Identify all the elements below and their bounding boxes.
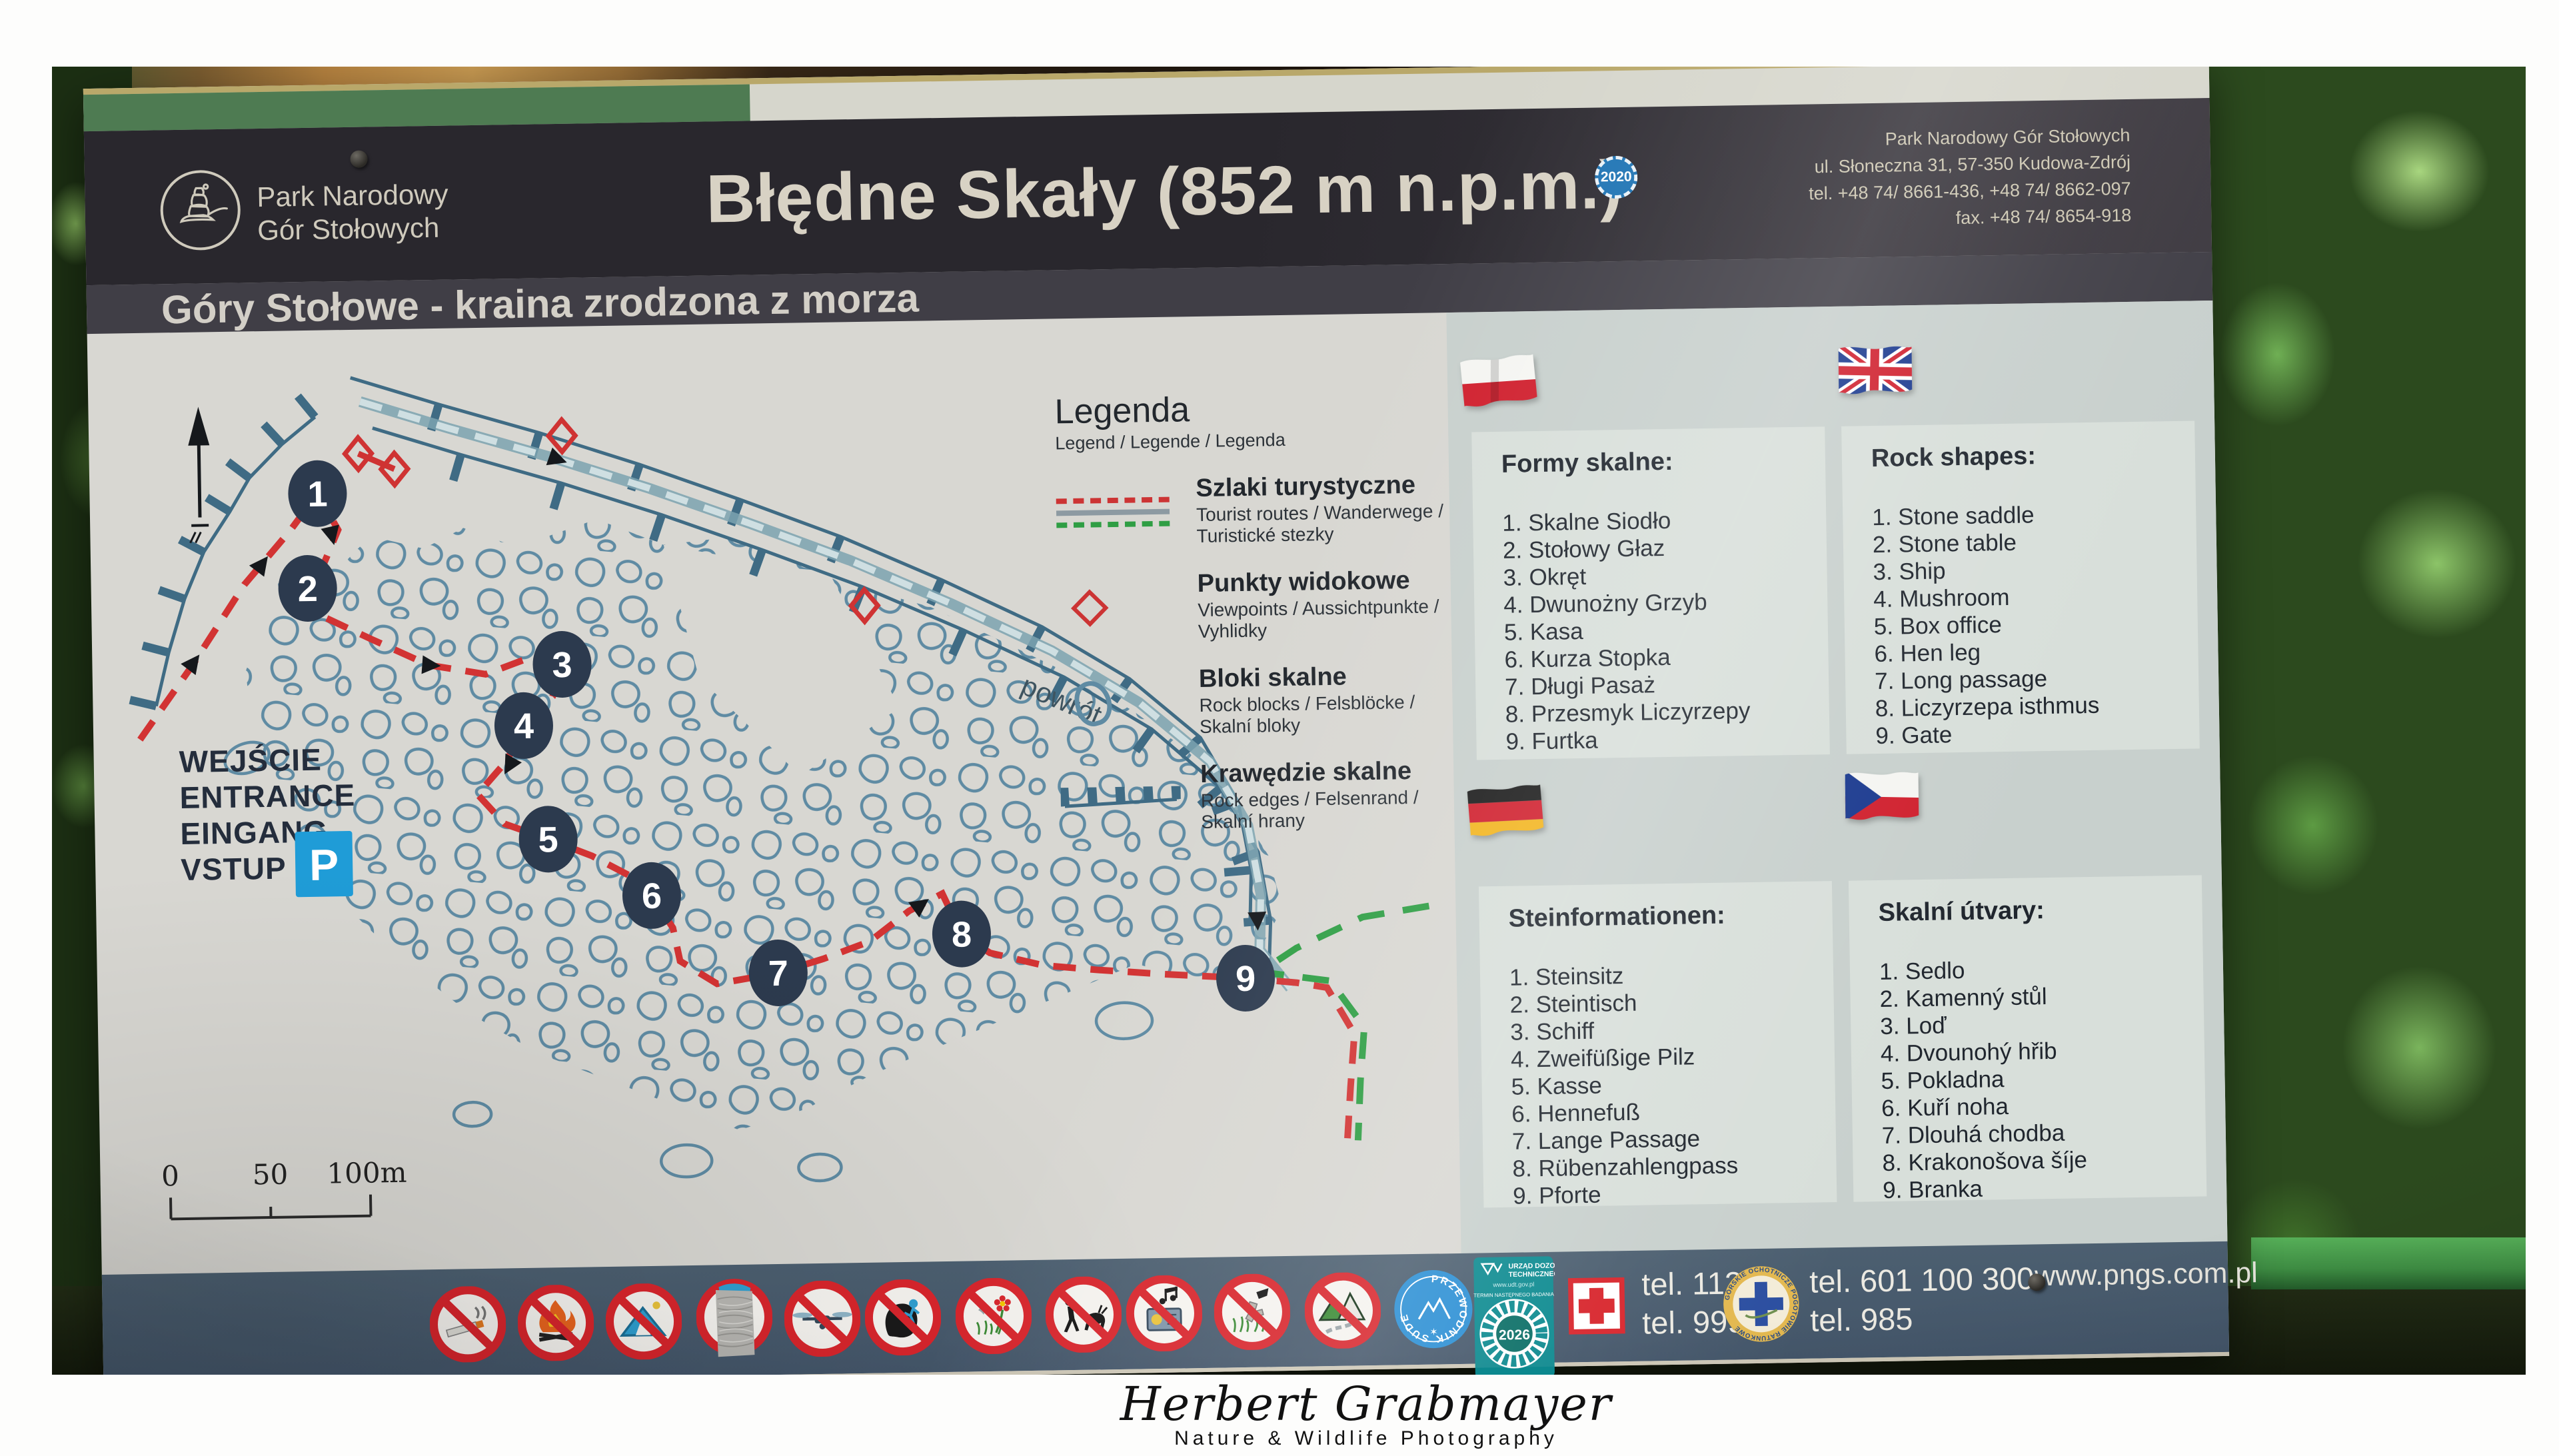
card-heading-en: Rock shapes: — [1871, 439, 2196, 473]
park-name: Park Narodowy Gór Stołowych — [257, 178, 449, 247]
svg-text:6: 6 — [642, 876, 662, 916]
svg-text:100m: 100m — [327, 1156, 407, 1190]
sudety-guide-sticker: PRZEWODNIK SUDECKI ✶ — [1392, 1268, 1475, 1351]
svg-text:8: 8 — [951, 914, 972, 954]
card-heading-cz: Skalní útvary: — [1878, 894, 2202, 928]
svg-text:5: 5 — [538, 820, 558, 860]
svg-text:TECHNICZNEGO: TECHNICZNEGO — [1509, 1270, 1557, 1279]
svg-text:3: 3 — [552, 645, 572, 685]
svg-text:WEJŚCIE: WEJŚCIE — [179, 742, 322, 779]
card-heading-pl: Formy skalne: — [1501, 445, 1826, 479]
card-heading-de: Steinformationen: — [1508, 900, 1833, 934]
germany-flag-icon — [1463, 781, 1547, 842]
rock-name-list-de: SteinsitzSteintischSchiffZweifüßige Pilz… — [1509, 959, 1837, 1210]
svg-text:0: 0 — [161, 1159, 180, 1192]
svg-text:URZĄD DOZORU: URZĄD DOZORU — [1508, 1261, 1556, 1270]
uk-flag-icon — [1833, 342, 1916, 400]
list-item: Pforte — [1513, 1177, 1837, 1210]
taped-over-sign — [696, 1276, 773, 1363]
rock-names-card-en: Rock shapes: Stone saddleStone tableShip… — [1841, 420, 2200, 754]
legend-title: Legenda — [1054, 386, 1448, 432]
parking-icon: P — [295, 831, 353, 897]
svg-text:4: 4 — [513, 706, 534, 746]
tourist-routes-symbol — [1056, 493, 1197, 531]
photo-of-information-board: Park Narodowy Gór Stołowych Błędne Skały… — [0, 0, 2559, 1456]
park-website: www.pngs.com.pl — [2035, 1257, 2248, 1293]
photographer-credit: Herbert Grabmayer Nature & Wildlife Phot… — [1080, 1377, 1653, 1450]
czech-flag-icon — [1840, 768, 1923, 826]
svg-text:www.udt.gov.pl: www.udt.gov.pl — [1492, 1281, 1534, 1288]
information-board-panel: Park Narodowy Gór Stołowych Błędne Skały… — [83, 67, 2229, 1375]
park-logo-icon — [160, 169, 241, 251]
list-item: Furtka — [1505, 723, 1830, 756]
green-railing — [2251, 1237, 2526, 1289]
photographer-name: Herbert Grabmayer — [1080, 1377, 1653, 1431]
svg-text:TERMIN NASTĘPNEGO BADANIA: TERMIN NASTĘPNEGO BADANIA — [1473, 1291, 1555, 1299]
park-address: Park Narodowy Gór Stołowych ul. Słoneczn… — [1808, 122, 2132, 234]
no-campfires-icon — [517, 1284, 594, 1361]
list-item: Gate — [1875, 717, 2200, 750]
svg-text:✶: ✶ — [1429, 1327, 1438, 1338]
rock-name-list-pl: Skalne SiodłoStołowy GłazOkrętDwunożny G… — [1502, 504, 1830, 756]
rock-block-symbol — [1059, 678, 1200, 726]
rock-names-card-de: Steinformationen: SteinsitzSteintischSch… — [1479, 881, 1837, 1207]
viewpoint-symbol — [1058, 593, 1198, 622]
udt-inspection-sticker: URZĄD DOZORU TECHNICZNEGO www.udt.gov.pl… — [1472, 1255, 1557, 1375]
poland-flag-icon — [1455, 351, 1541, 413]
svg-text:9: 9 — [1236, 959, 1256, 999]
gopr-badge-icon: GÓRSKIE OCHOTNICZE POGOTOWIE RATUNKOWE — [1721, 1264, 1801, 1344]
svg-text:7: 7 — [768, 954, 788, 994]
svg-text:1: 1 — [307, 474, 328, 514]
map-legend: Legenda Legend / Legende / Legenda Szlak… — [1054, 386, 1454, 835]
rock-name-list-en: Stone saddleStone tableShipMushroomBox o… — [1872, 498, 2200, 750]
board-title: Błędne Skały (852 m n.p.m.) — [551, 143, 1779, 241]
svg-text:2: 2 — [297, 569, 318, 609]
no-off-trail-icon — [1304, 1272, 1381, 1349]
rock-name-list-cz: SedloKamenný stůlLoďDvounohý hřibPokladn… — [1879, 953, 2207, 1204]
svg-text:2026: 2026 — [1499, 1327, 1530, 1343]
mountain-rescue-numbers: tel. 601 100 300 tel. 985 — [1809, 1259, 2035, 1339]
rock-names-card-pl: Formy skalne: Skalne SiodłoStołowy GłazO… — [1471, 426, 1830, 760]
north-arrow-icon — [187, 406, 211, 542]
no-littering-icon — [1214, 1273, 1291, 1351]
list-item: Branka — [1883, 1171, 2207, 1204]
red-cross-icon — [1564, 1273, 1629, 1338]
svg-text:P: P — [309, 840, 339, 890]
svg-text:VSTUP: VSTUP — [181, 851, 287, 887]
no-flower-picking-icon — [955, 1277, 1032, 1355]
scale-labels: 0 50 100m — [161, 1156, 407, 1193]
no-loud-music-icon — [1126, 1275, 1203, 1352]
no-climbing-icon — [864, 1279, 942, 1356]
rock-edge-symbol — [1061, 785, 1202, 810]
rock-names-card-cz: Skalní útvary: SedloKamenný stůlLoďDvoun… — [1849, 875, 2207, 1201]
photo-background: Park Narodowy Gór Stołowych Błędne Skały… — [52, 67, 2526, 1375]
scale-bar — [171, 1195, 371, 1219]
no-wildlife-disturbing-icon — [1045, 1276, 1122, 1353]
no-smoking-icon — [429, 1285, 506, 1363]
no-drones-icon — [784, 1280, 861, 1357]
no-camping-icon — [605, 1283, 682, 1360]
svg-text:ENTRANCE: ENTRANCE — [179, 778, 355, 815]
rock-names-panel: Formy skalne: Skalne SiodłoStołowy GłazO… — [1446, 301, 2227, 1253]
svg-text:50: 50 — [252, 1158, 288, 1191]
